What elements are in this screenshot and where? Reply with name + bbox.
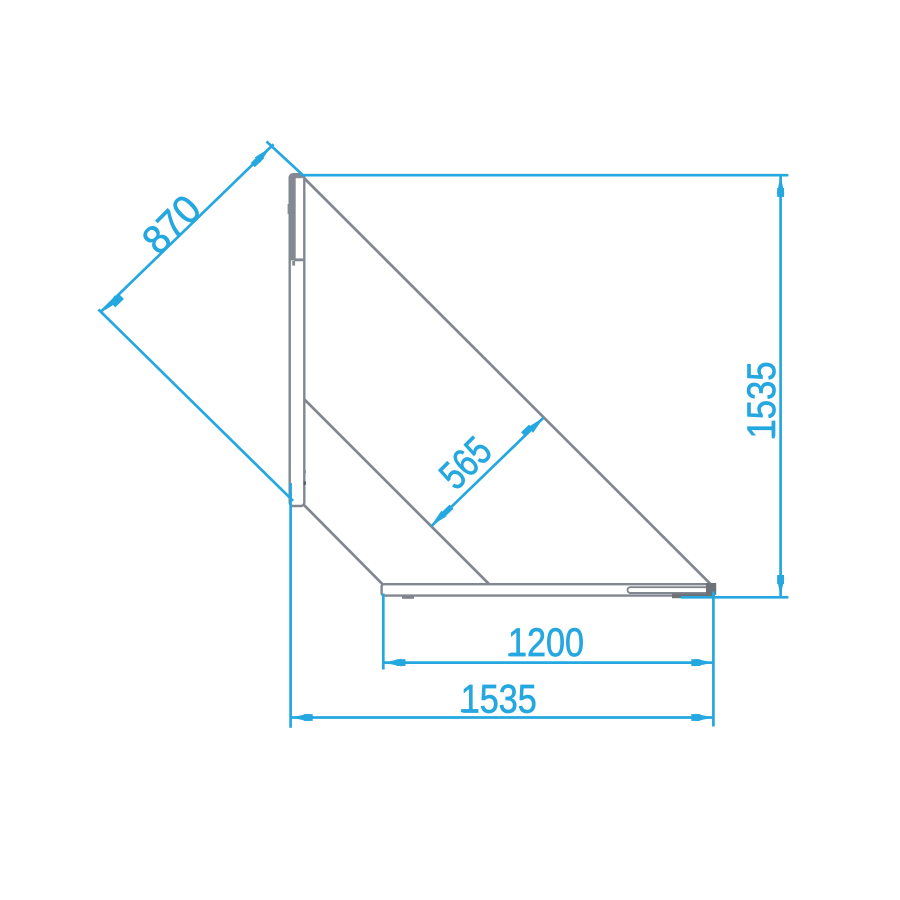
svg-text:1535: 1535 <box>461 677 537 721</box>
svg-text:1535: 1535 <box>740 362 784 439</box>
svg-text:1200: 1200 <box>508 621 584 665</box>
